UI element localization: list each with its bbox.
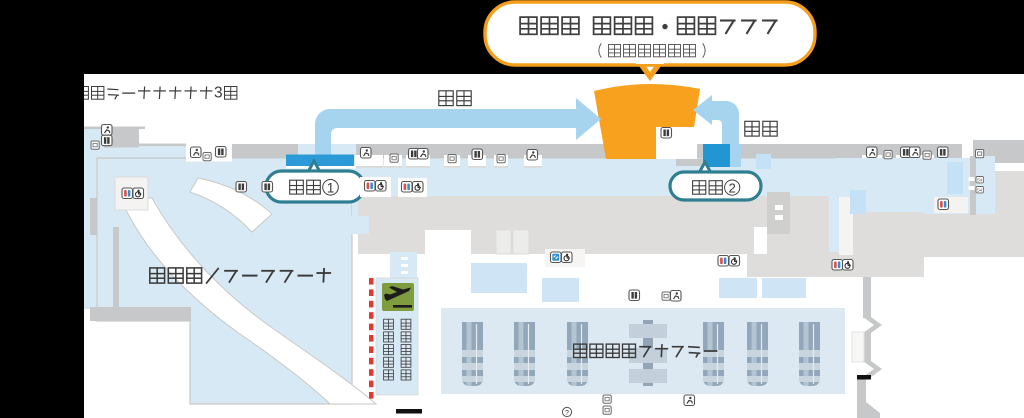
svg-text:3: 3 [214,84,223,101]
svg-text:1: 1 [327,180,335,195]
svg-text:2: 2 [729,181,736,196]
svg-text:?: ? [565,410,569,417]
